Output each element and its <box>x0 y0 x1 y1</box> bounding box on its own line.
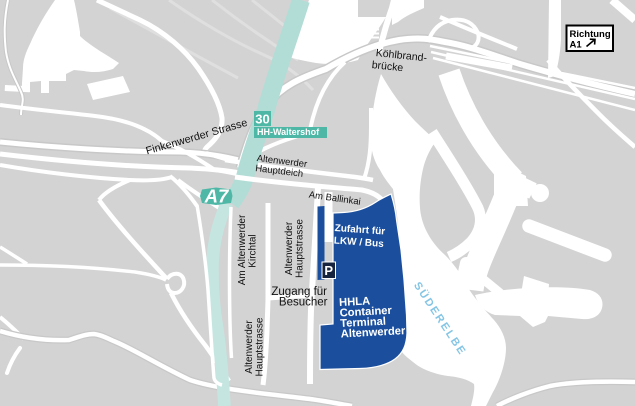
svg-text:A7: A7 <box>204 186 230 207</box>
svg-text:Hauptstrasse: Hauptstrasse <box>255 317 266 376</box>
svg-text:30: 30 <box>255 112 269 127</box>
svg-text:Altenwerder: Altenwerder <box>244 320 255 374</box>
svg-text:Besucher: Besucher <box>279 297 328 309</box>
svg-text:Hauptstrasse: Hauptstrasse <box>295 219 306 278</box>
svg-text:Altenwerder: Altenwerder <box>284 221 295 275</box>
svg-text:P: P <box>324 263 333 278</box>
svg-text:Richtung: Richtung <box>570 29 611 40</box>
svg-text:Kirchtal: Kirchtal <box>248 234 259 267</box>
svg-text:Am Altenwerder: Am Altenwerder <box>237 214 248 285</box>
svg-text:HH-Waltershof: HH-Waltershof <box>257 127 320 137</box>
svg-text:A1: A1 <box>570 40 583 51</box>
